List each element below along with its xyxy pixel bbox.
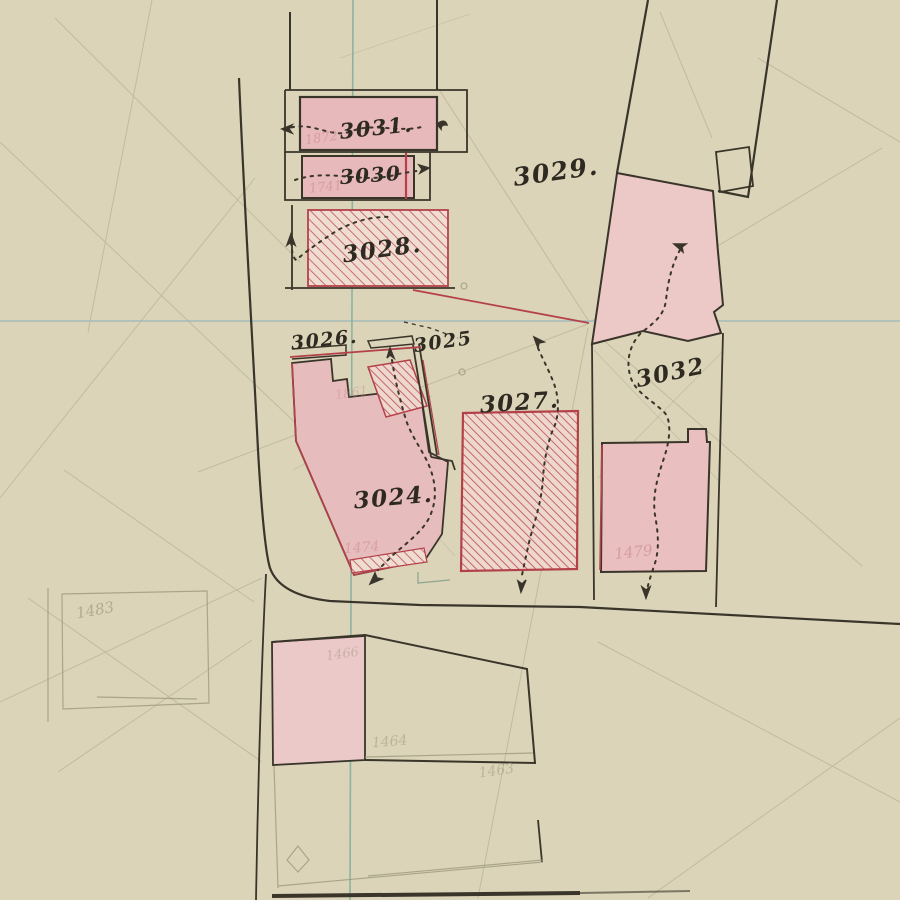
parcel-3027-hatched [461,411,578,571]
paper-sheen [0,0,900,900]
parcel-label-3030: 3030 [339,161,402,189]
parcel-label-3027: 3027. [479,386,560,418]
cadastral-plan-sheet: 3031. 3030 3028. 3029. 3026. 3025 3027. … [0,0,900,900]
plan-drawing: 3031. 3030 3028. 3029. 3026. 3025 3027. … [0,0,900,900]
faint-number-1464: 1464 [371,732,408,751]
faint-number-1474: 1474 [343,539,380,557]
